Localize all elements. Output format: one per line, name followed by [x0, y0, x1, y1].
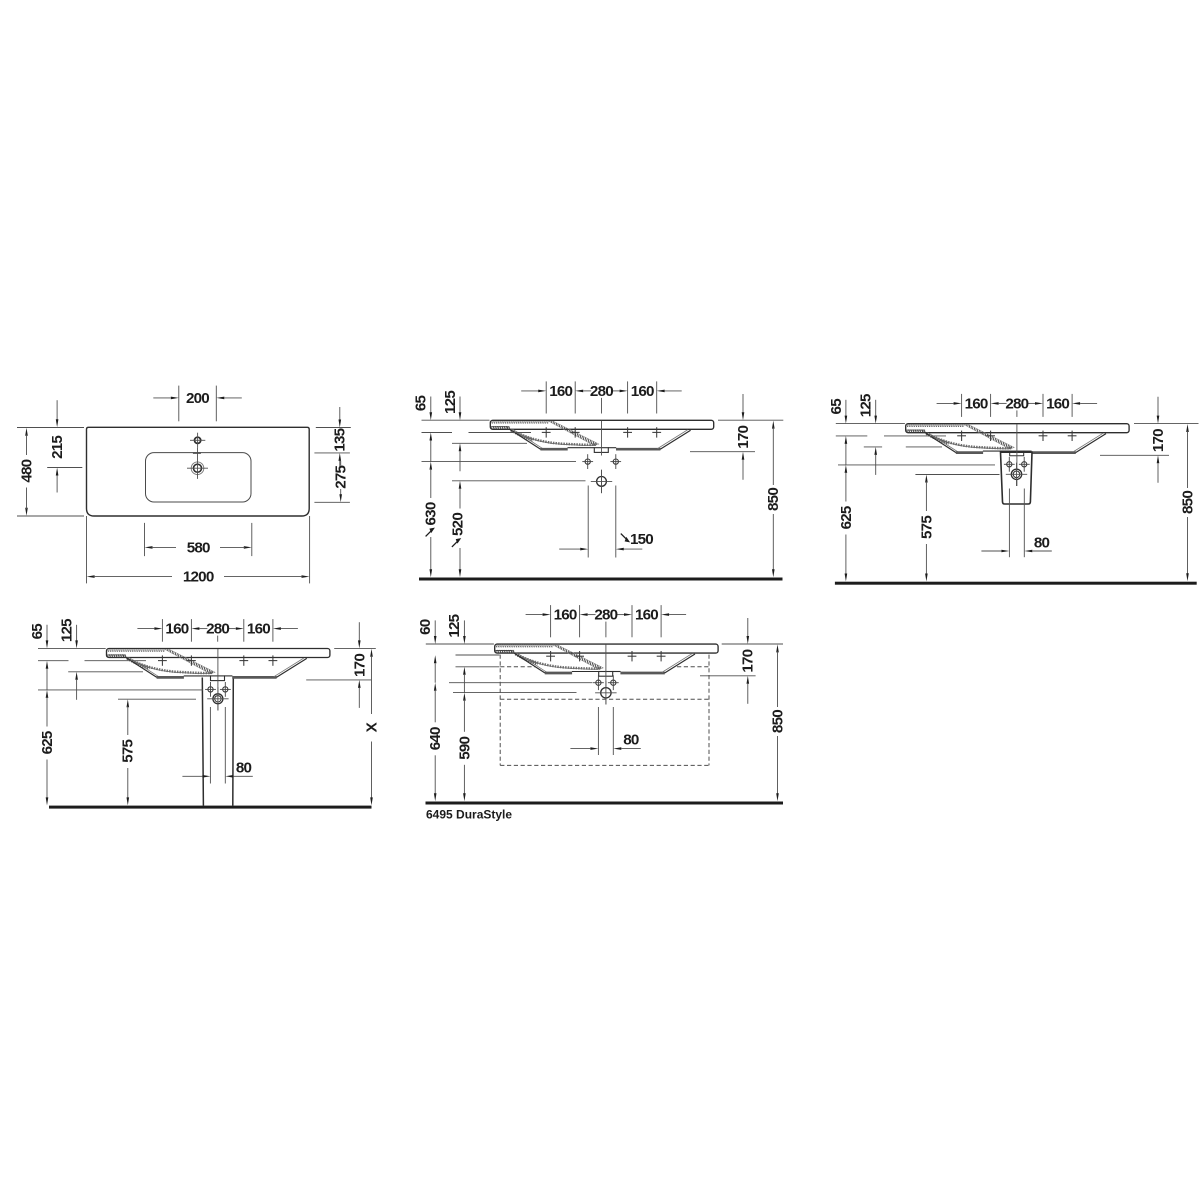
svg-text:625: 625 [838, 505, 855, 529]
svg-text:65: 65 [29, 623, 46, 640]
svg-text:575: 575 [918, 515, 935, 539]
svg-text:160: 160 [635, 607, 658, 624]
svg-text:575: 575 [120, 738, 137, 762]
svg-text:125: 125 [858, 393, 875, 417]
svg-text:170: 170 [735, 425, 752, 448]
svg-text:580: 580 [187, 539, 210, 556]
svg-text:170: 170 [1150, 429, 1167, 452]
svg-text:200: 200 [186, 390, 209, 407]
svg-text:80: 80 [623, 732, 639, 749]
svg-text:280: 280 [206, 621, 229, 638]
svg-text:160: 160 [631, 383, 654, 400]
svg-text:160: 160 [554, 607, 577, 624]
svg-text:280: 280 [594, 607, 617, 624]
svg-text:215: 215 [49, 435, 66, 459]
svg-text:80: 80 [236, 759, 252, 776]
svg-text:280: 280 [590, 383, 613, 400]
svg-text:80: 80 [1034, 535, 1050, 552]
svg-text:150: 150 [630, 531, 653, 548]
svg-text:1200: 1200 [183, 569, 214, 586]
svg-text:280: 280 [1005, 395, 1028, 412]
svg-text:170: 170 [351, 654, 368, 677]
svg-text:125: 125 [446, 613, 463, 637]
svg-text:170: 170 [740, 649, 757, 672]
svg-text:160: 160 [965, 395, 988, 412]
svg-text:640: 640 [427, 727, 444, 750]
svg-text:625: 625 [39, 730, 56, 754]
svg-text:850: 850 [769, 710, 786, 733]
svg-text:65: 65 [413, 395, 430, 412]
svg-text:160: 160 [165, 621, 188, 638]
svg-text:160: 160 [1046, 395, 1069, 412]
svg-text:65: 65 [828, 398, 845, 415]
svg-text:520: 520 [449, 513, 466, 536]
svg-text:135: 135 [332, 427, 349, 451]
svg-text:6495 DuraStyle: 6495 DuraStyle [426, 808, 512, 822]
svg-text:850: 850 [1179, 491, 1196, 514]
svg-text:630: 630 [423, 502, 440, 525]
svg-text:X: X [363, 722, 380, 732]
svg-text:125: 125 [58, 618, 75, 642]
svg-text:160: 160 [247, 621, 270, 638]
svg-text:60: 60 [417, 619, 434, 635]
svg-text:850: 850 [765, 488, 782, 511]
svg-text:125: 125 [442, 390, 459, 414]
svg-text:590: 590 [456, 736, 473, 759]
svg-text:160: 160 [549, 383, 572, 400]
svg-text:275: 275 [333, 464, 350, 488]
svg-text:480: 480 [19, 459, 36, 482]
